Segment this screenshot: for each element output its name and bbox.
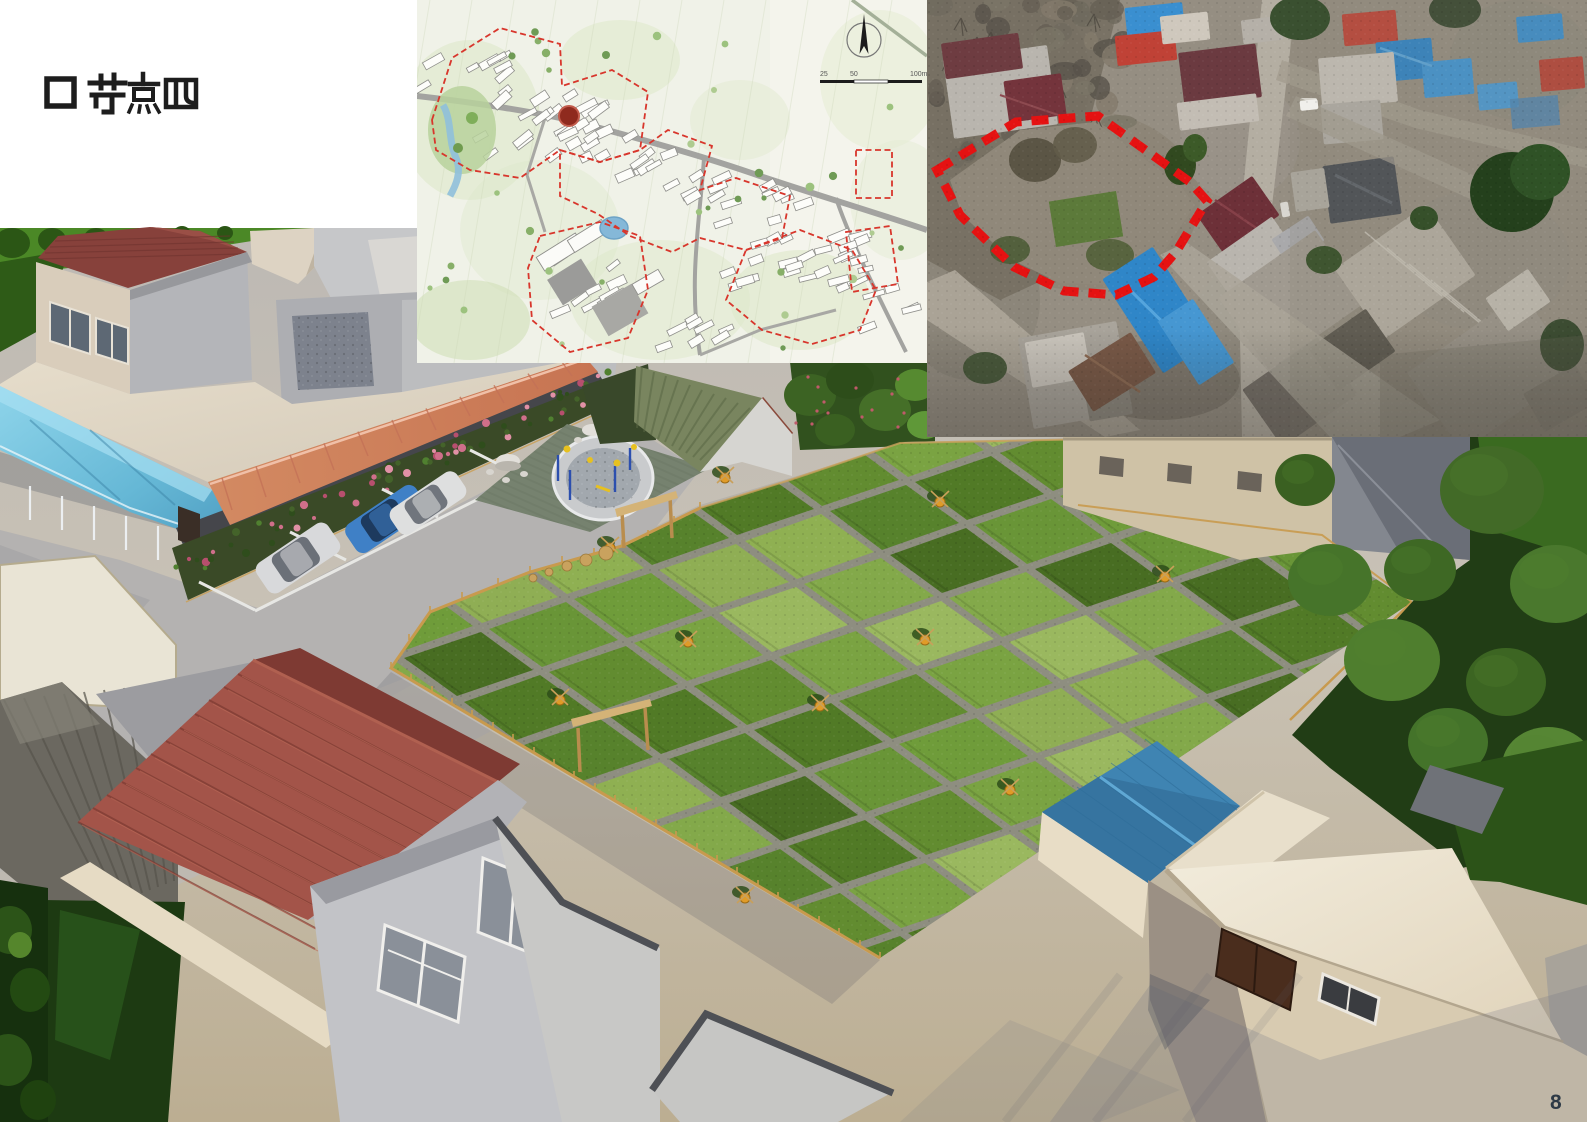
svg-text:8: 8 — [1550, 1091, 1562, 1114]
svg-text:100m: 100m — [910, 71, 928, 78]
svg-text:25: 25 — [820, 71, 828, 78]
svg-text:50: 50 — [850, 71, 858, 78]
